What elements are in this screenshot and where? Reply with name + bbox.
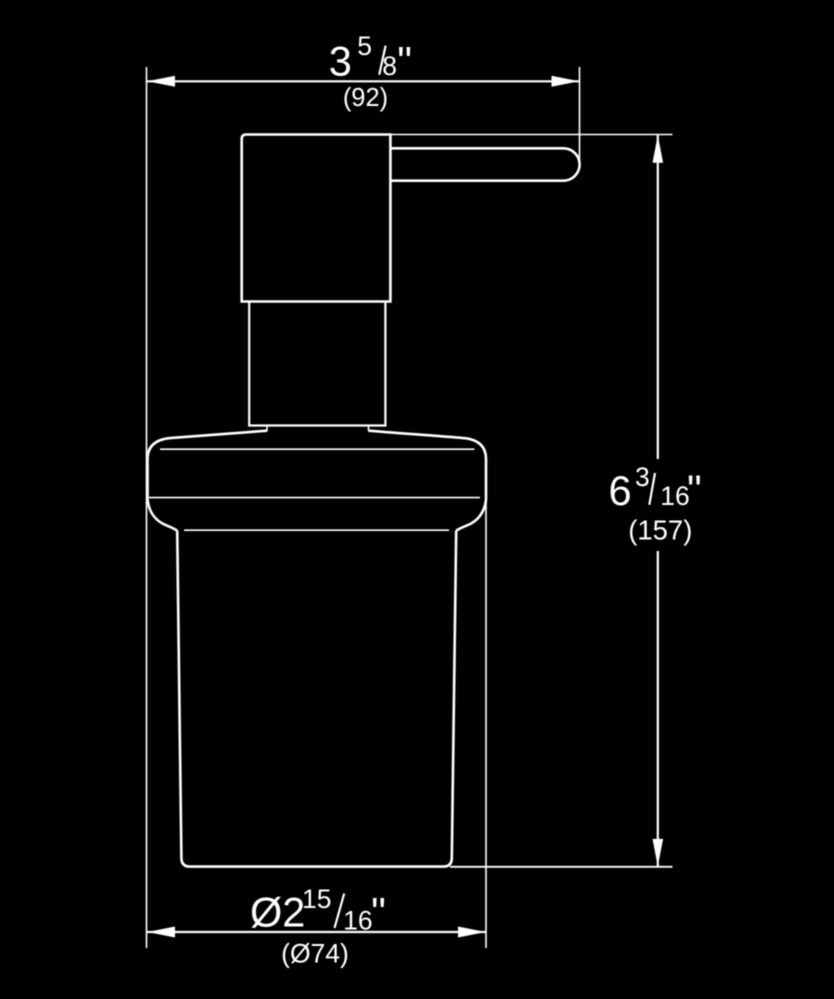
svg-text:16: 16 (660, 481, 689, 511)
svg-text:15: 15 (302, 884, 331, 914)
svg-text:3: 3 (635, 462, 650, 492)
svg-text:3: 3 (329, 38, 352, 85)
svg-text:Ø2: Ø2 (250, 889, 305, 936)
svg-text:(157): (157) (628, 515, 692, 546)
svg-text:5: 5 (357, 31, 372, 61)
svg-text:6: 6 (609, 467, 632, 514)
svg-text:": " (371, 889, 386, 936)
svg-text:(Ø74): (Ø74) (281, 938, 349, 968)
svg-text:16: 16 (343, 905, 372, 935)
svg-text:": " (687, 466, 702, 513)
svg-text:8: 8 (382, 51, 397, 81)
svg-text:(92): (92) (343, 84, 388, 112)
svg-text:": " (397, 38, 412, 85)
